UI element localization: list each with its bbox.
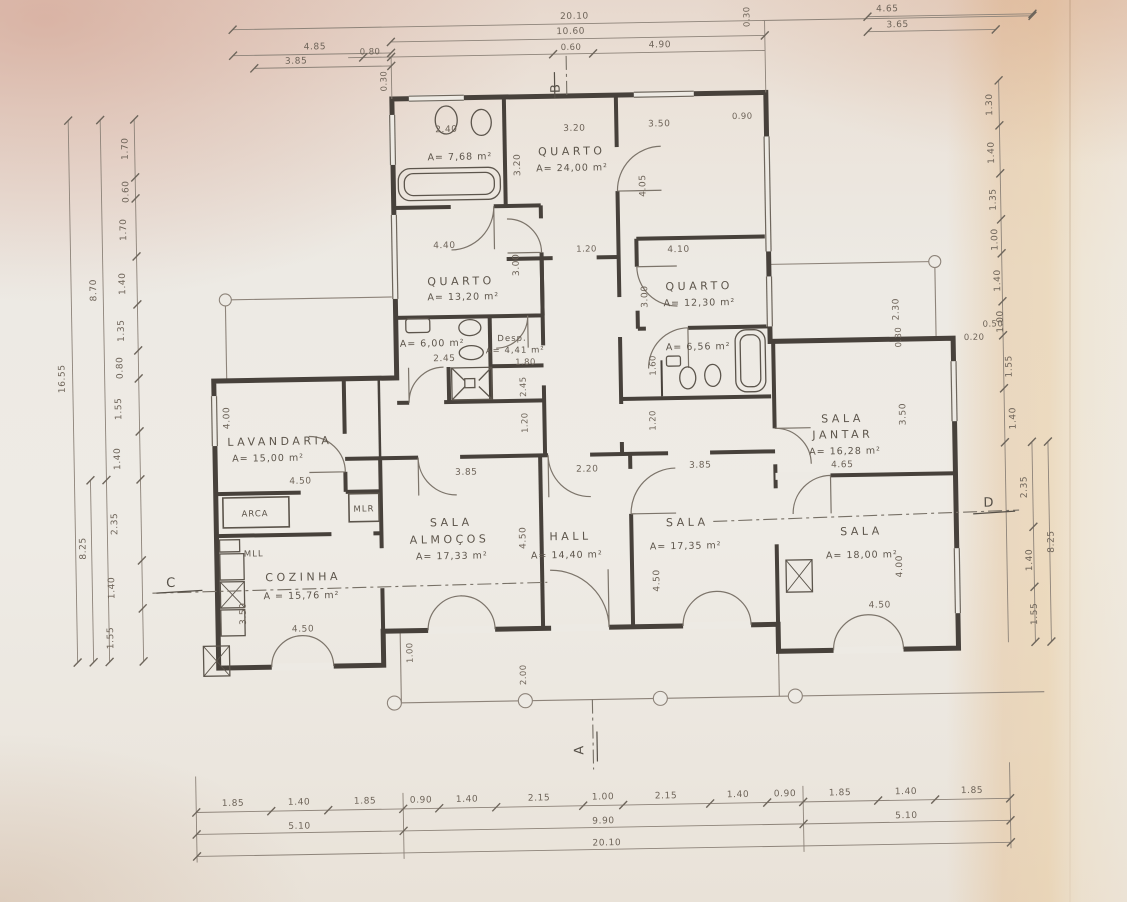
dim-desp-v: 2.45 — [519, 376, 529, 397]
arca-label: ARCA — [241, 509, 268, 519]
mll-label: MLL — [244, 549, 264, 559]
sala-jantar-name2: JANTAR — [811, 428, 873, 442]
kitchen-unit-icon — [220, 554, 244, 580]
lavandaria-area: A= 15,00 m² — [232, 453, 304, 465]
dim-quarto-top-v: 3.20 — [513, 153, 523, 176]
sala-jantar-area: A= 16,28 m² — [809, 445, 881, 457]
sala-almocos-name: SALA — [430, 516, 473, 530]
dim-right-230: 2.30 — [891, 298, 901, 321]
dim-top-right-365: 3.65 — [886, 20, 909, 30]
dim-right-lower: 1.40 — [1025, 549, 1035, 572]
dim-porch-100: 1.00 — [405, 642, 415, 663]
dim-right-030: 0.30 — [894, 327, 904, 348]
dim-left: 1.40 — [118, 272, 128, 295]
dim-bottom: 1.40 — [727, 790, 750, 800]
dim-left-total: 16.55 — [57, 364, 68, 393]
dim-cozinha: 4.50 — [292, 624, 315, 634]
quarto-top-name: QUARTO — [538, 144, 606, 158]
dim-desp: 1.80 — [515, 357, 536, 367]
wc1-area: A= 7,68 m² — [427, 151, 492, 163]
dim-quarto-right-v: 3.00 — [640, 285, 650, 308]
sala-almocos-name2: ALMOÇOS — [410, 532, 490, 546]
dim-hall: 2.20 — [576, 464, 599, 474]
dim-left: 1.70 — [119, 218, 129, 241]
dim-left: 0.80 — [115, 356, 125, 379]
dim-porch-200: 2.00 — [519, 664, 529, 685]
bathtub-icon — [735, 329, 766, 392]
wc3-area: A= 6,56 m² — [666, 341, 731, 353]
dim-bottom: 1.85 — [961, 786, 984, 796]
mlr-label: MLR — [353, 504, 374, 514]
dim-right-lower: 1.55 — [1030, 603, 1040, 626]
dim-bottom: 1.85 — [829, 788, 852, 798]
dim-right: 1.35 — [988, 188, 998, 211]
dim-bottom: 0.90 — [410, 795, 433, 805]
dim-right-825: 8.25 — [1046, 530, 1056, 553]
dim-top-right-465: 4.65 — [876, 4, 899, 14]
dim-left: 2.35 — [110, 513, 120, 536]
quarto-left-name: QUARTO — [427, 274, 495, 288]
cozinha-area: A = 15,76 m² — [264, 590, 340, 602]
dim-lavandaria-v: 4.00 — [222, 407, 232, 430]
dim-right-050: 0.50 — [983, 319, 1004, 329]
sink-icon — [220, 540, 240, 552]
dim-left: 1.40 — [107, 577, 117, 600]
dim-corridor-120b: 1.20 — [520, 412, 530, 433]
dim-bottom-total: 20.10 — [592, 838, 621, 849]
dim-corridor-120c: 1.20 — [648, 410, 658, 431]
wc2-area: A= 6,00 m² — [400, 338, 465, 350]
quarto-right-name: QUARTO — [665, 279, 733, 293]
sala-center-area: A= 17,35 m² — [650, 540, 722, 552]
dim-top-left-385: 3.85 — [285, 56, 308, 66]
section-marker-a: A — [572, 745, 587, 755]
washbasin-icon — [406, 318, 430, 332]
dim-bottom: 1.40 — [456, 795, 479, 805]
dim-corridor-120: 1.20 — [576, 244, 597, 254]
dim-sala-jantar-v: 3.50 — [898, 403, 908, 426]
bidet-icon — [705, 364, 721, 386]
dim-right: 1.55 — [1004, 355, 1014, 378]
quarto-left-area: A= 13,20 m² — [427, 291, 499, 303]
dim-sala-center: 3.85 — [689, 460, 712, 470]
bidet-icon — [471, 109, 491, 135]
dim-cozinha-v: 3.50 — [239, 602, 249, 625]
toilet-icon — [459, 319, 481, 335]
desp-area: A= 4,41 m² — [486, 345, 545, 356]
washbasin-icon — [666, 356, 680, 366]
dim-left: 1.70 — [120, 137, 130, 160]
dim-wc2: 2.45 — [433, 354, 456, 364]
dim-quarto-right: 4.10 — [667, 245, 690, 255]
section-marker-c: C — [166, 576, 176, 591]
dim-right: 1.40 — [1008, 407, 1018, 430]
scanned-floor-plan-photo: 20.10 10.60 0.60 4.90 4.85 3.85 0.80 4.6… — [0, 0, 1127, 902]
dim-left-870: 8.70 — [89, 279, 99, 302]
dim-top-mid: 10.60 — [556, 27, 585, 38]
dim-lavandaria: 4.50 — [289, 476, 312, 486]
desp-name: Desp. — [497, 334, 526, 345]
dim-suite-405: 4.05 — [638, 174, 648, 197]
dim-bottom: 1.85 — [354, 796, 377, 806]
dim-right: 1.40 — [993, 269, 1003, 292]
dim-sala-right: 4.50 — [868, 600, 891, 610]
section-marker-d: D — [983, 496, 994, 511]
dim-bottom: 1.00 — [592, 792, 615, 802]
dim-v030-left: 0.30 — [379, 71, 389, 92]
sala-jantar-name: SALA — [821, 412, 864, 426]
dim-right-020: 0.20 — [964, 333, 985, 343]
dim-wc3-v: 1.60 — [648, 355, 658, 376]
dim-wc1: 2.40 — [435, 125, 458, 135]
porch-lines — [219, 254, 1045, 713]
dim-bottom-990: 9.90 — [592, 816, 615, 826]
labels: 20.10 10.60 0.60 4.90 4.85 3.85 0.80 4.6… — [51, 1, 1061, 858]
dim-left: 1.40 — [113, 447, 123, 470]
cozinha-name: COZINHA — [265, 570, 341, 584]
dim-top-490: 4.90 — [649, 40, 672, 50]
dim-top-total: 20.10 — [560, 12, 589, 23]
dim-left-825: 8.25 — [78, 537, 88, 560]
hall-area: A= 14,40 m² — [531, 549, 603, 561]
dim-v030-right: 0.30 — [742, 6, 752, 27]
dim-sala-right-v: 4.00 — [895, 555, 905, 578]
dim-left: 1.35 — [117, 319, 127, 342]
sala-almocos-area: A= 17,33 m² — [416, 550, 488, 562]
dim-bottom: 0.90 — [774, 789, 797, 799]
dim-right: 1.30 — [985, 93, 995, 116]
dim-top-060: 0.60 — [561, 43, 582, 53]
dim-right: 1.00 — [990, 228, 1000, 251]
dim-right: 1.40 — [987, 141, 997, 164]
dim-bottom: 1.40 — [288, 797, 311, 807]
sala-right-name: SALA — [840, 524, 883, 538]
dim-sala-jantar: 4.65 — [831, 460, 854, 470]
quarto-right-area: A= 12,30 m² — [663, 297, 735, 309]
dim-right-lower: 2.35 — [1020, 476, 1030, 499]
dim-top-left-485: 4.85 — [304, 42, 327, 52]
toilet-icon — [680, 367, 696, 389]
lavandaria-name: LAVANDARIA — [227, 434, 332, 449]
floor-plan-drawing: 20.10 10.60 0.60 4.90 4.85 3.85 0.80 4.6… — [0, 0, 1127, 902]
door-arcs — [263, 142, 904, 667]
section-marker-b: B — [549, 83, 564, 93]
quarto-top-area: A= 24,00 m² — [536, 162, 608, 174]
dim-suite-350: 3.50 — [648, 119, 671, 129]
door-gaps — [269, 474, 904, 667]
dim-bottom: 1.85 — [222, 799, 245, 809]
dim-quarto-top: 3.20 — [563, 124, 586, 134]
dim-left: 1.55 — [106, 627, 116, 650]
dim-sala-almocos-v: 4.50 — [518, 526, 528, 549]
dim-bottom: 2.15 — [655, 791, 678, 801]
dim-quarto-left: 4.40 — [433, 241, 456, 251]
hall-name: HALL — [549, 530, 591, 544]
dim-sala-center-v: 4.50 — [652, 569, 662, 592]
dim-quarto-left-v: 3.00 — [512, 254, 522, 277]
dim-left: 1.55 — [114, 397, 124, 420]
dim-bottom-510l: 5.10 — [288, 821, 311, 831]
sala-right-area: A= 18,00 m² — [826, 549, 898, 561]
dim-bottom: 1.40 — [895, 787, 918, 797]
dim-top-left-080: 0.80 — [360, 47, 381, 57]
dim-bottom: 2.15 — [528, 793, 551, 803]
dim-left: 0.60 — [121, 180, 131, 203]
dim-sala-almocos: 3.85 — [455, 468, 478, 478]
sala-center-name: SALA — [666, 516, 709, 530]
dim-suite-090: 0.90 — [732, 112, 753, 122]
dim-bottom-510r: 5.10 — [895, 811, 918, 821]
